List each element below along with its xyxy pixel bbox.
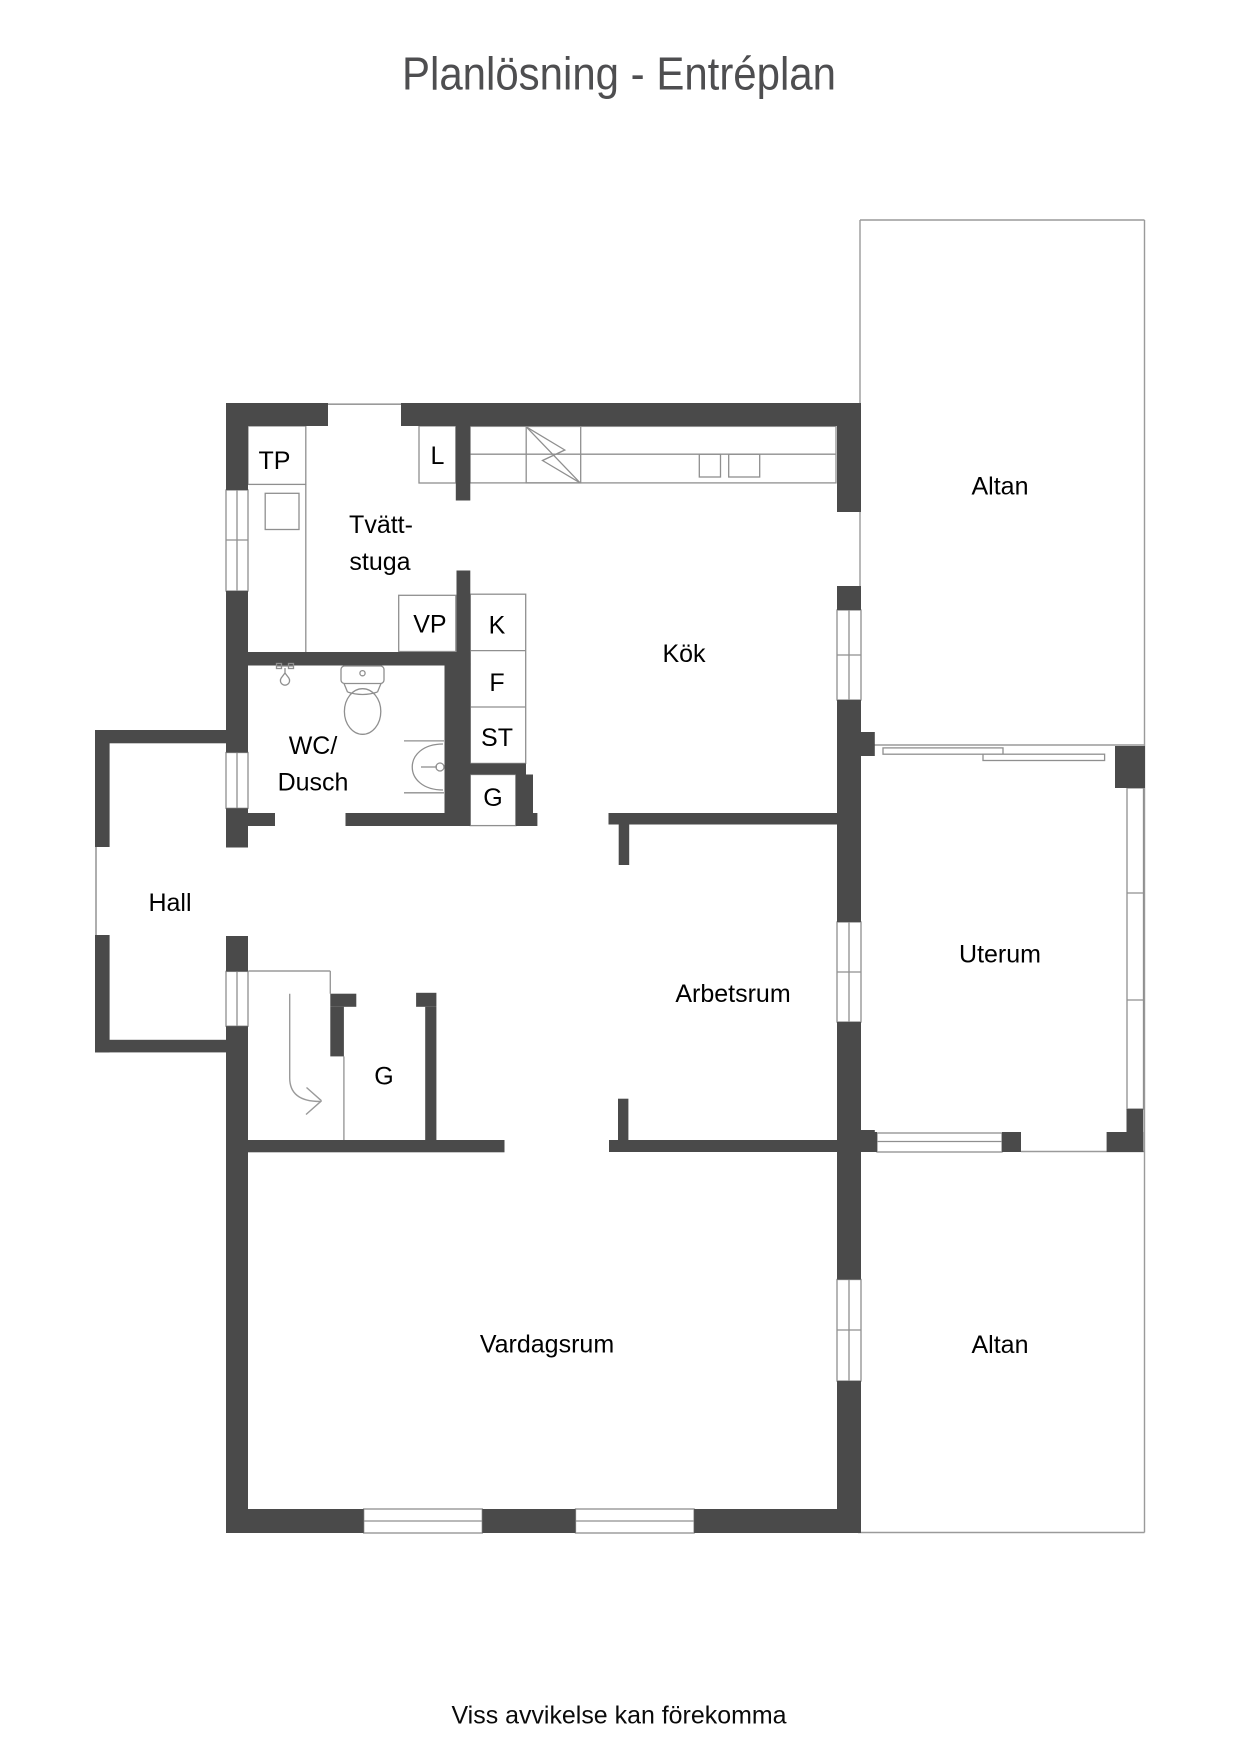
svg-text:K: K bbox=[489, 612, 506, 640]
svg-text:L: L bbox=[430, 442, 444, 470]
svg-text:VP: VP bbox=[413, 611, 446, 639]
svg-text:Vardagsrum: Vardagsrum bbox=[480, 1331, 614, 1359]
svg-text:Altan: Altan bbox=[972, 473, 1029, 501]
svg-text:Arbetsrum: Arbetsrum bbox=[675, 980, 790, 1008]
svg-text:ST: ST bbox=[481, 724, 513, 752]
svg-text:G: G bbox=[483, 784, 502, 812]
svg-text:Tvätt-: Tvätt- bbox=[349, 511, 413, 539]
svg-text:Planlösning - Entréplan: Planlösning - Entréplan bbox=[402, 48, 836, 100]
svg-text:Hall: Hall bbox=[148, 889, 191, 917]
svg-text:Dusch: Dusch bbox=[278, 769, 349, 797]
svg-text:Kök: Kök bbox=[662, 640, 706, 668]
svg-text:G: G bbox=[374, 1063, 393, 1091]
svg-text:Uterum: Uterum bbox=[959, 941, 1041, 969]
svg-text:stuga: stuga bbox=[349, 548, 410, 576]
svg-text:Viss avvikelse kan förekomma: Viss avvikelse kan förekomma bbox=[452, 1702, 787, 1730]
svg-text:TP: TP bbox=[259, 447, 291, 475]
svg-text:F: F bbox=[489, 669, 504, 697]
svg-text:WC/: WC/ bbox=[289, 732, 338, 760]
svg-text:Altan: Altan bbox=[972, 1331, 1029, 1359]
